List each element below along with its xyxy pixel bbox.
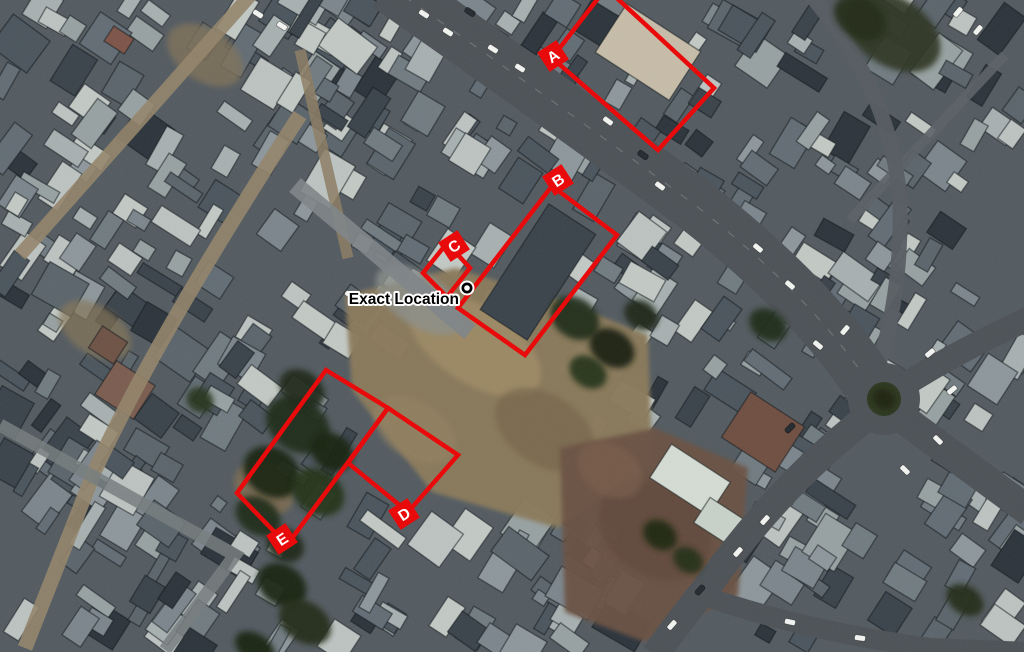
exact-location-text: Exact Location	[349, 291, 459, 308]
exact-location-marker-dot	[464, 285, 470, 291]
map-image: ABCDEExact Location	[0, 0, 1024, 652]
image-grain	[0, 0, 1024, 652]
annotated-satellite-image: ABCDEExact Location	[0, 0, 1024, 652]
satellite-imagery	[0, 0, 1024, 652]
